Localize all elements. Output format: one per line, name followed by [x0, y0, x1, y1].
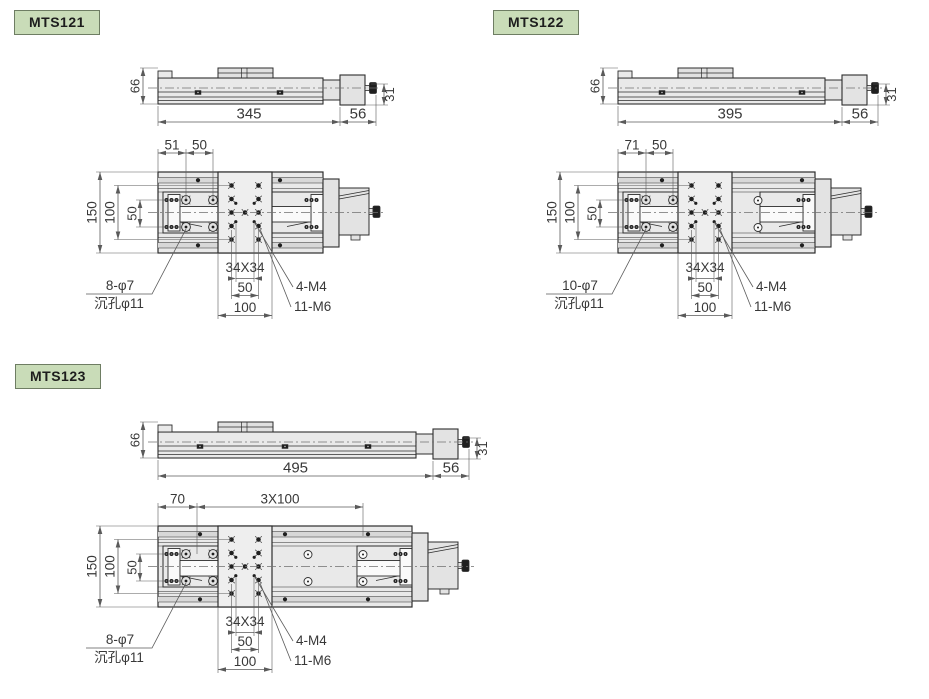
clamp-dot: [367, 446, 368, 447]
rail-screw: [660, 178, 664, 182]
dim-arrow: [688, 276, 696, 281]
dim-arrow: [558, 245, 563, 253]
dim-arrow: [461, 474, 469, 479]
m4-hole: [253, 220, 256, 223]
drawing-shape: [357, 561, 400, 577]
drawing-shape: [180, 561, 218, 577]
dim-arrow: [228, 630, 236, 635]
dim-arrow: [141, 450, 146, 458]
m6-hole: [229, 578, 234, 583]
bearing-screw-center: [808, 226, 809, 227]
dim-label: 71: [624, 138, 639, 153]
dim-label: 395: [717, 106, 742, 123]
dim-arrow: [141, 422, 146, 430]
drawing-shape: [373, 206, 380, 218]
counterbore-hole-center: [212, 553, 215, 556]
m6-hole: [229, 197, 234, 202]
m6-hole: [256, 551, 261, 556]
panel-mts122: MTS122 66395563171501501005034X345010010…: [460, 0, 929, 352]
dim-arrow: [116, 540, 121, 548]
rail-screw: [278, 243, 282, 247]
m4-hole: [253, 202, 256, 205]
dim-arrow: [834, 120, 842, 125]
callout-m4: 4-M4: [296, 633, 327, 648]
mts121-drawing: 66345563151501501005034X34501008-φ7沉孔φ11…: [0, 0, 460, 352]
rail-screw: [366, 597, 370, 601]
callout-m4: 4-M4: [756, 279, 787, 294]
bearing-screw-center: [400, 553, 401, 554]
dim-label: 31: [884, 87, 899, 101]
panel-mts123: MTS123 664955631703X1001501005034X345010…: [0, 354, 520, 699]
dim-label: 100: [694, 300, 717, 315]
callout-m6: 11-M6: [294, 299, 331, 314]
dim-label: 66: [128, 433, 143, 447]
m4-hole: [253, 556, 256, 559]
bearing-screw-center: [316, 199, 317, 200]
datasheet-page: MTS121 66345563151501501005034X34501008-…: [0, 0, 929, 699]
through-hole-center: [362, 581, 364, 583]
m6-hole: [229, 224, 234, 229]
rail-screw: [660, 243, 664, 247]
dim-arrow: [116, 186, 121, 194]
rail-screw: [278, 178, 282, 182]
dim-label: 100: [234, 300, 257, 315]
dim-label: 66: [128, 79, 143, 93]
dim-label: 100: [563, 201, 578, 224]
callout-m6: 11-M6: [754, 299, 791, 314]
callout-counterbore: 沉孔φ11: [94, 650, 144, 665]
dim-arrow: [618, 120, 626, 125]
m6-hole: [689, 224, 694, 229]
drawing-shape: [825, 80, 842, 100]
dim-arrow: [158, 505, 166, 510]
bearing-screw-center: [798, 199, 799, 200]
bearing-screw-center: [400, 580, 401, 581]
drawing-shape: [843, 235, 852, 240]
bearing-screw-center: [803, 226, 804, 227]
through-hole-center: [307, 554, 309, 556]
dim-label: 50: [192, 138, 207, 153]
rail-screw: [800, 178, 804, 182]
dim-arrow: [724, 313, 732, 318]
dim-arrow: [218, 667, 226, 672]
dim-arrow: [576, 186, 581, 194]
clamp-dot: [197, 92, 198, 93]
dim-arrow: [254, 276, 262, 281]
rail-screw: [198, 597, 202, 601]
drawing-shape: [618, 71, 632, 78]
dim-arrow: [98, 245, 103, 253]
drawing-shape: [865, 206, 872, 218]
drawing-shape: [323, 80, 340, 100]
dim-label: 50: [585, 206, 600, 220]
dim-label: 50: [652, 138, 667, 153]
bearing-screw-center: [311, 226, 312, 227]
m4-hole: [713, 220, 716, 223]
m6-hole: [716, 183, 721, 188]
dim-arrow: [340, 120, 348, 125]
callout-counterbore: 沉孔φ11: [94, 296, 144, 311]
bearing-screw-center: [306, 199, 307, 200]
counterbore-hole-center: [672, 226, 675, 229]
dim-arrow: [228, 276, 236, 281]
dim-label: 100: [103, 201, 118, 224]
rail-screw: [800, 243, 804, 247]
drawing-shape: [340, 75, 365, 105]
dim-arrow: [264, 313, 272, 318]
m4-hole: [234, 574, 237, 577]
callout-counterbore: 沉孔φ11: [554, 296, 604, 311]
dim-label: 31: [382, 87, 397, 101]
bearing-screw-center: [808, 199, 809, 200]
dim-arrow: [576, 232, 581, 240]
callout-m6: 11-M6: [294, 653, 331, 668]
rail-screw: [366, 532, 370, 536]
m4-hole: [694, 220, 697, 223]
drawing-shape: [458, 563, 462, 569]
drawing-shape: [412, 533, 428, 601]
dim-label: 495: [283, 460, 308, 477]
dim-arrow: [158, 474, 166, 479]
clamp-dot: [199, 446, 200, 447]
dim-label: 150: [85, 555, 100, 578]
drawing-shape: [180, 207, 218, 223]
dim-label: 51: [164, 138, 179, 153]
drawing-shape: [462, 560, 469, 572]
drawing-shape: [323, 179, 339, 247]
counterbore-hole-center: [185, 580, 188, 583]
mts123-drawing: 664955631703X1001501005034X34501008-φ7沉孔…: [0, 354, 520, 699]
rail-screw: [196, 178, 200, 182]
drawing-shape: [842, 75, 867, 105]
top-view: 71501501005034X345010010-φ7沉孔φ114-M411-M…: [545, 138, 878, 320]
m6-hole: [689, 197, 694, 202]
dim-label: 50: [697, 280, 712, 295]
dim-label: 56: [852, 106, 869, 123]
dim-label: 150: [545, 201, 560, 224]
m4-hole: [234, 220, 237, 223]
clamp-dot: [801, 92, 802, 93]
dim-arrow: [197, 505, 205, 510]
bearing-screw-center: [316, 226, 317, 227]
dim-arrow: [332, 120, 340, 125]
dim-label: 3X100: [260, 492, 299, 507]
drawing-shape: [158, 425, 172, 432]
drawing-shape: [618, 78, 825, 104]
bearing-screw-center: [395, 553, 396, 554]
callout-m4: 4-M4: [296, 279, 327, 294]
bearing-screw-center: [405, 580, 406, 581]
m4-hole: [253, 574, 256, 577]
callout-mount-holes: 8-φ7: [106, 278, 134, 293]
dim-arrow: [218, 313, 226, 318]
clamp-dot: [661, 92, 662, 93]
dim-arrow: [842, 120, 850, 125]
drawing-shape: [158, 71, 172, 78]
dim-arrow: [264, 667, 272, 672]
side-view: 663455631: [128, 68, 398, 126]
dim-arrow: [98, 526, 103, 534]
dim-label: 50: [125, 560, 140, 574]
dim-arrow: [368, 120, 376, 125]
m6-hole: [256, 537, 261, 542]
bearing-screw-center: [798, 226, 799, 227]
dim-arrow: [433, 474, 441, 479]
dim-arrow: [116, 232, 121, 240]
m4-hole: [234, 556, 237, 559]
through-hole-center: [757, 200, 759, 202]
dim-arrow: [870, 120, 878, 125]
dim-arrow: [601, 96, 606, 104]
dim-label: 345: [236, 106, 261, 123]
m4-hole: [713, 202, 716, 205]
side-view: 664955631: [128, 422, 491, 480]
dim-arrow: [98, 172, 103, 180]
drawing-shape: [268, 207, 311, 223]
side-view: 663955631: [588, 68, 900, 126]
rail-screw: [198, 532, 202, 536]
dim-label: 50: [125, 206, 140, 220]
dim-arrow: [98, 599, 103, 607]
m6-hole: [229, 551, 234, 556]
dim-label: 70: [170, 492, 185, 507]
mts122-drawing: 66395563171501501005034X345010010-φ7沉孔φ1…: [460, 0, 929, 352]
drawing-shape: [433, 429, 458, 459]
m4-hole: [234, 202, 237, 205]
dim-arrow: [425, 474, 433, 479]
dim-label: 50: [237, 634, 252, 649]
dim-arrow: [141, 96, 146, 104]
rail-screw: [196, 243, 200, 247]
counterbore-hole-center: [185, 226, 188, 229]
drawing-shape: [351, 235, 360, 240]
drawing-shape: [640, 207, 678, 223]
dim-arrow: [254, 630, 262, 635]
dim-arrow: [116, 586, 121, 594]
drawing-shape: [369, 209, 373, 215]
clamp-dot: [284, 446, 285, 447]
dim-arrow: [558, 172, 563, 180]
callout-mount-holes: 10-φ7: [562, 278, 598, 293]
panel-mts121: MTS121 66345563151501501005034X34501008-…: [0, 0, 460, 352]
dim-label: 56: [443, 460, 460, 477]
drawing-shape: [440, 589, 449, 594]
through-hole-center: [307, 581, 309, 583]
counterbore-hole-center: [645, 226, 648, 229]
drawing-shape: [416, 434, 433, 454]
dim-label: 100: [103, 555, 118, 578]
dim-arrow: [189, 505, 197, 510]
bearing-screw-center: [311, 199, 312, 200]
drawing-shape: [760, 207, 803, 223]
drawing-shape: [815, 179, 831, 247]
dim-arrow: [601, 68, 606, 76]
top-view: 51501501005034X34501008-φ7沉孔φ114-M411-M6: [85, 138, 386, 320]
m6-hole: [716, 197, 721, 202]
counterbore-hole-center: [185, 553, 188, 556]
dim-arrow: [714, 276, 722, 281]
dim-label: 31: [475, 441, 490, 455]
counterbore-hole-center: [212, 580, 215, 583]
clamp-dot: [279, 92, 280, 93]
dim-label: 66: [588, 79, 603, 93]
dim-arrow: [141, 68, 146, 76]
bearing-screw-center: [803, 199, 804, 200]
dim-arrow: [678, 313, 686, 318]
m6-hole: [256, 183, 261, 188]
dim-label: 150: [85, 201, 100, 224]
bearing-screw-center: [306, 226, 307, 227]
top-view: 703X1001501005034X34501008-φ7沉孔φ114-M411…: [85, 492, 475, 674]
drawing-shape: [861, 209, 865, 215]
rail-screw: [283, 532, 287, 536]
m6-hole: [256, 197, 261, 202]
dim-arrow: [355, 505, 363, 510]
bearing-screw-center: [405, 553, 406, 554]
drawing-shape: [158, 78, 323, 104]
rail-screw: [283, 597, 287, 601]
bearing-screw-center: [395, 580, 396, 581]
callout-mount-holes: 8-φ7: [106, 632, 134, 647]
through-hole-center: [757, 227, 759, 229]
m4-hole: [694, 202, 697, 205]
through-hole-center: [362, 554, 364, 556]
dim-label: 56: [350, 106, 367, 123]
counterbore-hole-center: [212, 226, 215, 229]
dim-label: 100: [234, 654, 257, 669]
dim-arrow: [158, 120, 166, 125]
dim-label: 50: [237, 280, 252, 295]
